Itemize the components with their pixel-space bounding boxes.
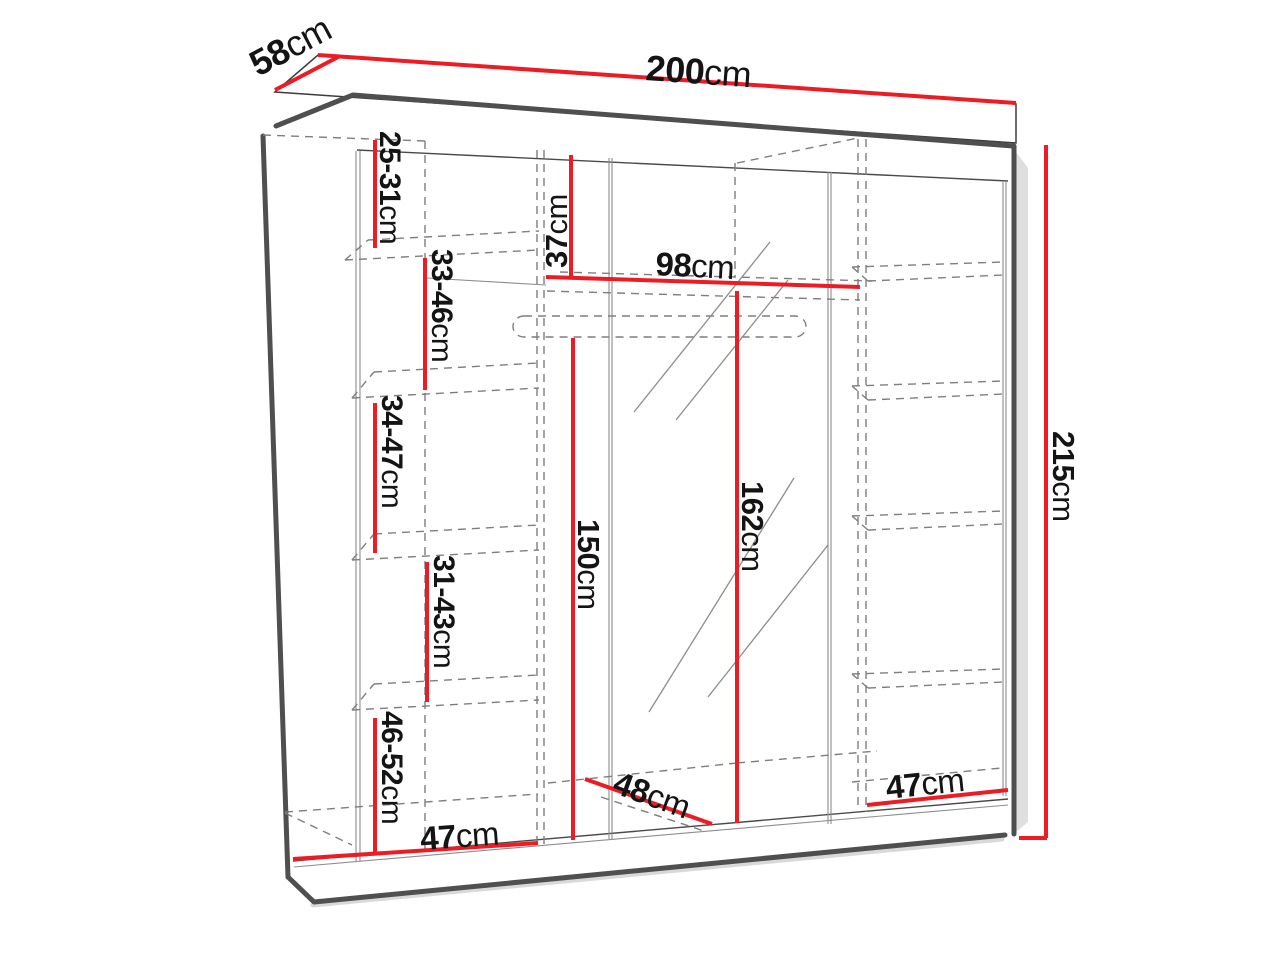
mirror-glare — [634, 242, 828, 712]
dim-label-floor-right: 47cm — [884, 761, 966, 806]
dim-label-shelf-4: 31-43cm — [427, 555, 460, 668]
dim-label-floor-middle: 48cm — [609, 764, 696, 826]
shelf-edge-dashed — [352, 684, 374, 710]
dim-label-shelf-1: 25-31cm — [373, 131, 406, 244]
dim-label-hang-left: 150cm — [571, 519, 606, 610]
shelf-edge-dashed — [352, 372, 374, 398]
dim-label-shelf-3: 34-47cm — [375, 395, 408, 508]
floor-edge-dashed — [737, 751, 877, 763]
shelf-edge-dashed — [852, 511, 1004, 516]
interior-ceiling-line — [357, 150, 1008, 181]
wardrobe-dimension-diagram: 200cm 58cm 215cm 37cm 98cm 150cm 162cm 2… — [0, 0, 1280, 960]
shelf-edge-dashed — [547, 291, 860, 300]
shelf-edge-dashed — [868, 682, 1004, 688]
mirror-glare-line — [676, 280, 788, 420]
dim-label-width: 200cm — [644, 47, 752, 95]
shelf-edge-dashed — [868, 275, 1004, 281]
shelf-edge-dashed — [374, 525, 539, 534]
dim-label-shelf-2: 33-46cm — [425, 249, 458, 362]
dim-label-hang-right: 162cm — [735, 481, 770, 572]
hanging-rail-dashed — [513, 316, 806, 337]
left-outer-edge — [263, 136, 288, 877]
right-side-shadow — [1016, 152, 1028, 832]
dim-label-floor-left: 47cm — [419, 815, 500, 857]
floor-edge-dashed — [285, 813, 352, 845]
shelf-edge-dashed — [352, 700, 539, 710]
shelf-edge-dashed — [352, 534, 374, 560]
dim-label-height: 215cm — [1046, 431, 1081, 522]
mirror-glare-line — [649, 478, 794, 712]
shelf-edge-dashed — [852, 262, 1004, 267]
dim-label-top-gap: 37cm — [539, 194, 574, 268]
top-right-depth-dashed — [737, 138, 858, 163]
shelf-edge-dashed — [868, 394, 1004, 400]
floor-edge-dashed — [285, 794, 538, 812]
shelf-edge-dashed — [852, 381, 1004, 386]
shelf-edge-dashed — [374, 675, 539, 684]
shelf-edge-dashed — [852, 669, 1004, 674]
ground-shadow — [313, 839, 1002, 905]
dim-label-rail-width: 98cm — [655, 245, 736, 286]
bottom-outer-edge — [288, 835, 1005, 902]
dim-label-shelf-5: 46-52cm — [375, 711, 408, 824]
shelf-edge-dashed — [868, 524, 1004, 530]
shelf-edge-dashed — [374, 363, 539, 372]
